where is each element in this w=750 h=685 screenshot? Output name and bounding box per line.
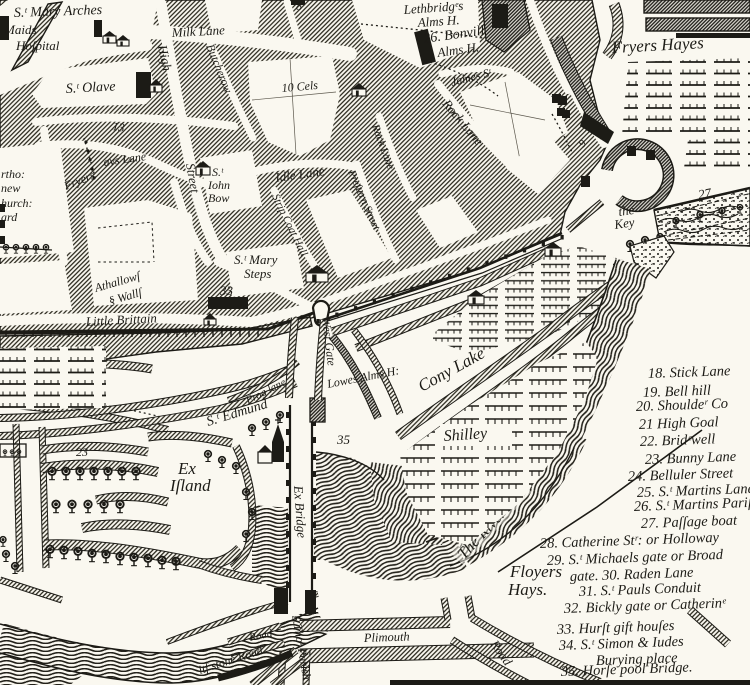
svg-text:13: 13 bbox=[112, 119, 126, 135]
svg-text:Iſland: Iſland bbox=[169, 476, 211, 495]
svg-text:27. Paſſage boat: 27. Paſſage boat bbox=[641, 513, 739, 532]
svg-text:Hays.: Hays. bbox=[507, 580, 547, 599]
svg-text:S.ᵗ Mary: S.ᵗ Mary bbox=[234, 252, 278, 267]
svg-text:Maids: Maids bbox=[3, 22, 37, 37]
svg-text:S.ᵗ Mary Arches: S.ᵗ Mary Arches bbox=[14, 3, 103, 21]
svg-text:S.ᵗ Olave: S.ᵗ Olave bbox=[65, 79, 115, 97]
svg-text:35: 35 bbox=[336, 432, 351, 447]
svg-text:S.ᵗ: S.ᵗ bbox=[212, 165, 224, 179]
svg-text:22. Bridᶜwell: 22. Bridᶜwell bbox=[640, 431, 716, 450]
svg-text:new: new bbox=[1, 181, 20, 195]
svg-text:20. Shouldeʳ Co: 20. Shouldeʳ Co bbox=[636, 396, 729, 415]
svg-text:Plimouth: Plimouth bbox=[363, 629, 410, 645]
svg-text:33: 33 bbox=[219, 283, 234, 298]
svg-text:Steps: Steps bbox=[244, 266, 271, 281]
svg-text:Bow: Bow bbox=[208, 191, 229, 205]
svg-text:hurch:: hurch: bbox=[1, 196, 33, 210]
svg-text:Milk Lane: Milk Lane bbox=[170, 22, 225, 40]
svg-text:Key: Key bbox=[612, 214, 635, 232]
svg-text:Hoſpital: Hoſpital bbox=[15, 38, 60, 53]
svg-text:23: 23 bbox=[76, 445, 88, 459]
svg-text:21 High Goal: 21 High Goal bbox=[639, 414, 719, 433]
svg-text:18. Stick Lane: 18. Stick Lane bbox=[648, 363, 732, 382]
svg-text:rtho:: rtho: bbox=[1, 167, 25, 181]
svg-text:Shilley: Shilley bbox=[443, 425, 489, 445]
svg-text:Iohn: Iohn bbox=[207, 178, 230, 192]
